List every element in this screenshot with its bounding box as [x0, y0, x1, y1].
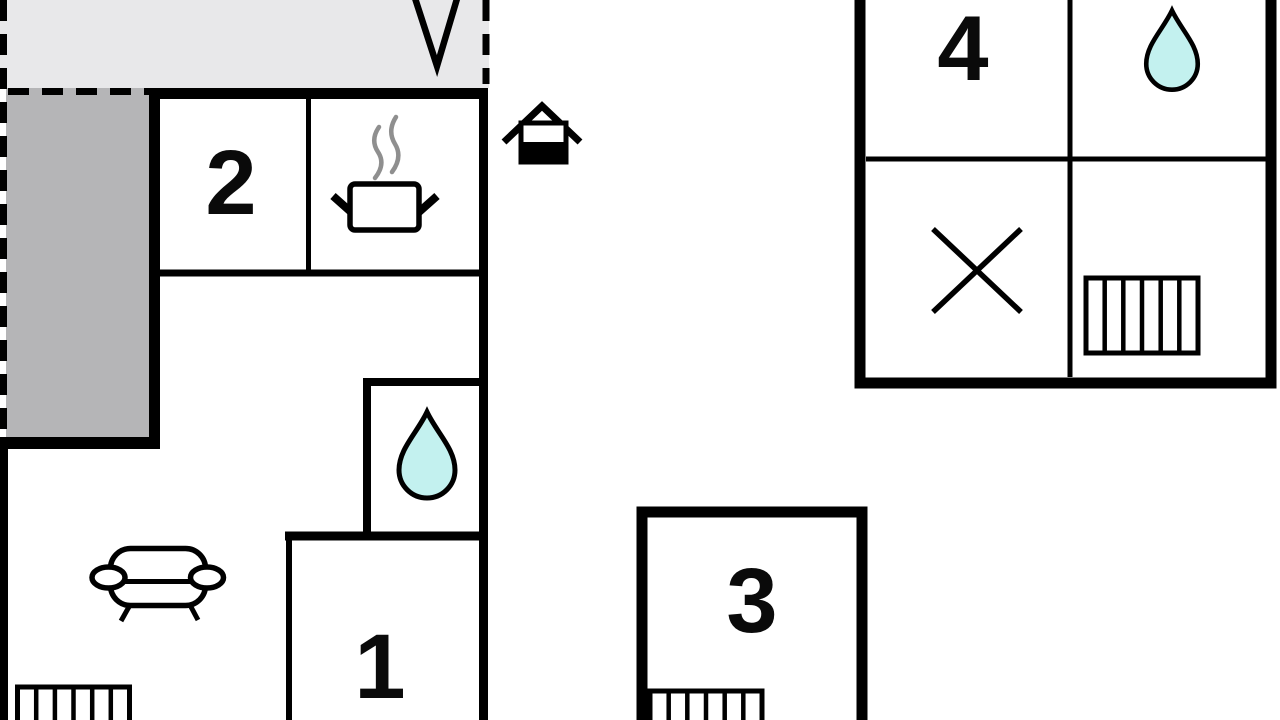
upper-block: [860, 0, 1271, 383]
floor-plan: 2 1 3 4: [0, 0, 1280, 720]
cooking-pot-icon: [333, 117, 437, 230]
room-3-label: 3: [726, 550, 777, 652]
sofa-icon: [92, 549, 224, 622]
entrance-icon: [504, 106, 580, 162]
floor-plan-page: 2 1 3 4: [0, 0, 1280, 720]
room-2-label: 2: [205, 132, 256, 234]
steam-line: [374, 127, 381, 178]
entrance-door: [519, 142, 569, 162]
steam-line: [391, 117, 398, 172]
pot-body: [350, 184, 419, 230]
sofa-armrest: [191, 567, 224, 588]
stairs-icon: [650, 691, 762, 720]
room-1-label: 1: [354, 616, 405, 718]
sofa-armrest: [92, 567, 125, 588]
balcony-area: [6, 88, 152, 443]
terrace-area: [0, 0, 489, 88]
water-drop-icon: [399, 412, 455, 498]
room-4-label: 4: [937, 0, 988, 100]
upper-block-outline: [860, 0, 1271, 383]
stairs-icon: [18, 687, 130, 720]
stairs-icon: [1086, 278, 1198, 353]
